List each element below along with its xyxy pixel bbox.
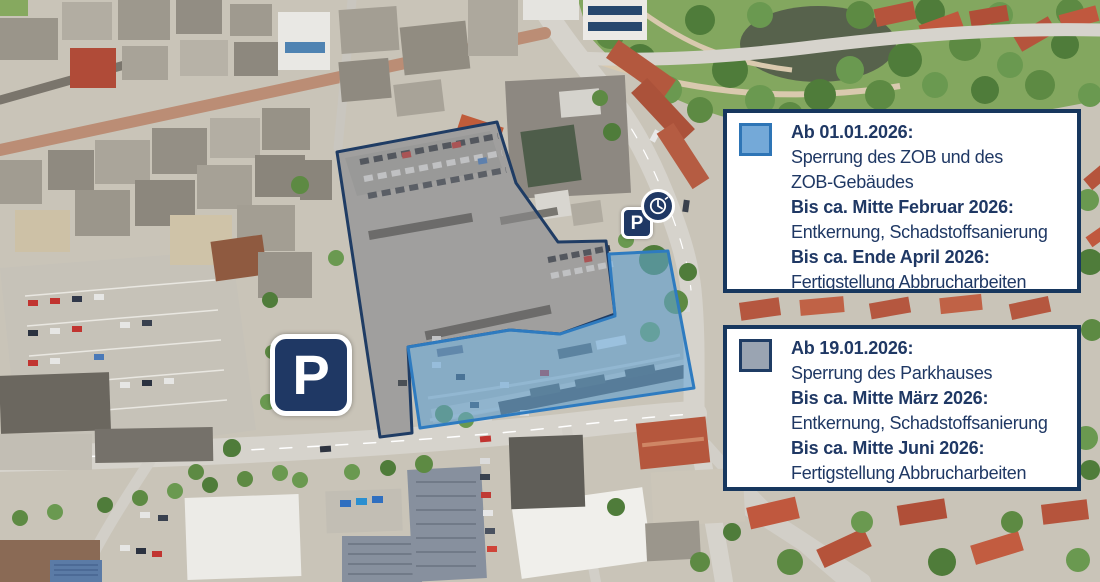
info-box-parkhaus-lines: Ab 19.01.2026: Sperrung des Parkhauses B… (791, 336, 1071, 486)
info-box-parkhaus: Ab 19.01.2026: Sperrung des Parkhauses B… (723, 325, 1081, 491)
info-line: Ab 19.01.2026: (791, 336, 1071, 361)
info-line: Ab 01.01.2026: (791, 120, 1071, 145)
parkhaus-legend-swatch-icon (739, 339, 772, 372)
info-line: Bis ca. Mitte März 2026: (791, 386, 1071, 411)
info-line: Bis ca. Mitte Juni 2026: (791, 436, 1071, 461)
info-line: Bis ca. Mitte Februar 2026: (791, 195, 1071, 220)
info-line: Sperrung des Parkhauses (791, 361, 1071, 386)
construction-phases-aerial-map: P P Ab 01.01.2026: Sperrung des ZOB und … (0, 0, 1100, 582)
info-line: Entkernung, Schadstoffsanierung (791, 411, 1071, 436)
info-line: Bis ca. Ende April 2026: (791, 245, 1071, 270)
info-line: Fertigstellung Abbrucharbeiten (791, 461, 1071, 486)
zob-legend-swatch-icon (739, 123, 772, 156)
info-line: Sperrung des ZOB und des (791, 145, 1071, 170)
info-line: ZOB-Gebäudes (791, 170, 1071, 195)
info-box-zob: Ab 01.01.2026: Sperrung des ZOB und des … (723, 109, 1081, 293)
parking-garage-sign-letter: P (292, 347, 329, 403)
parking-garage-sign: P (270, 334, 352, 416)
info-line: Entkernung, Schadstoffsanierung (791, 220, 1071, 245)
clock-icon (640, 188, 676, 224)
info-box-zob-lines: Ab 01.01.2026: Sperrung des ZOB und des … (791, 120, 1071, 293)
info-line: Fertigstellung Abbrucharbeiten (791, 270, 1071, 293)
